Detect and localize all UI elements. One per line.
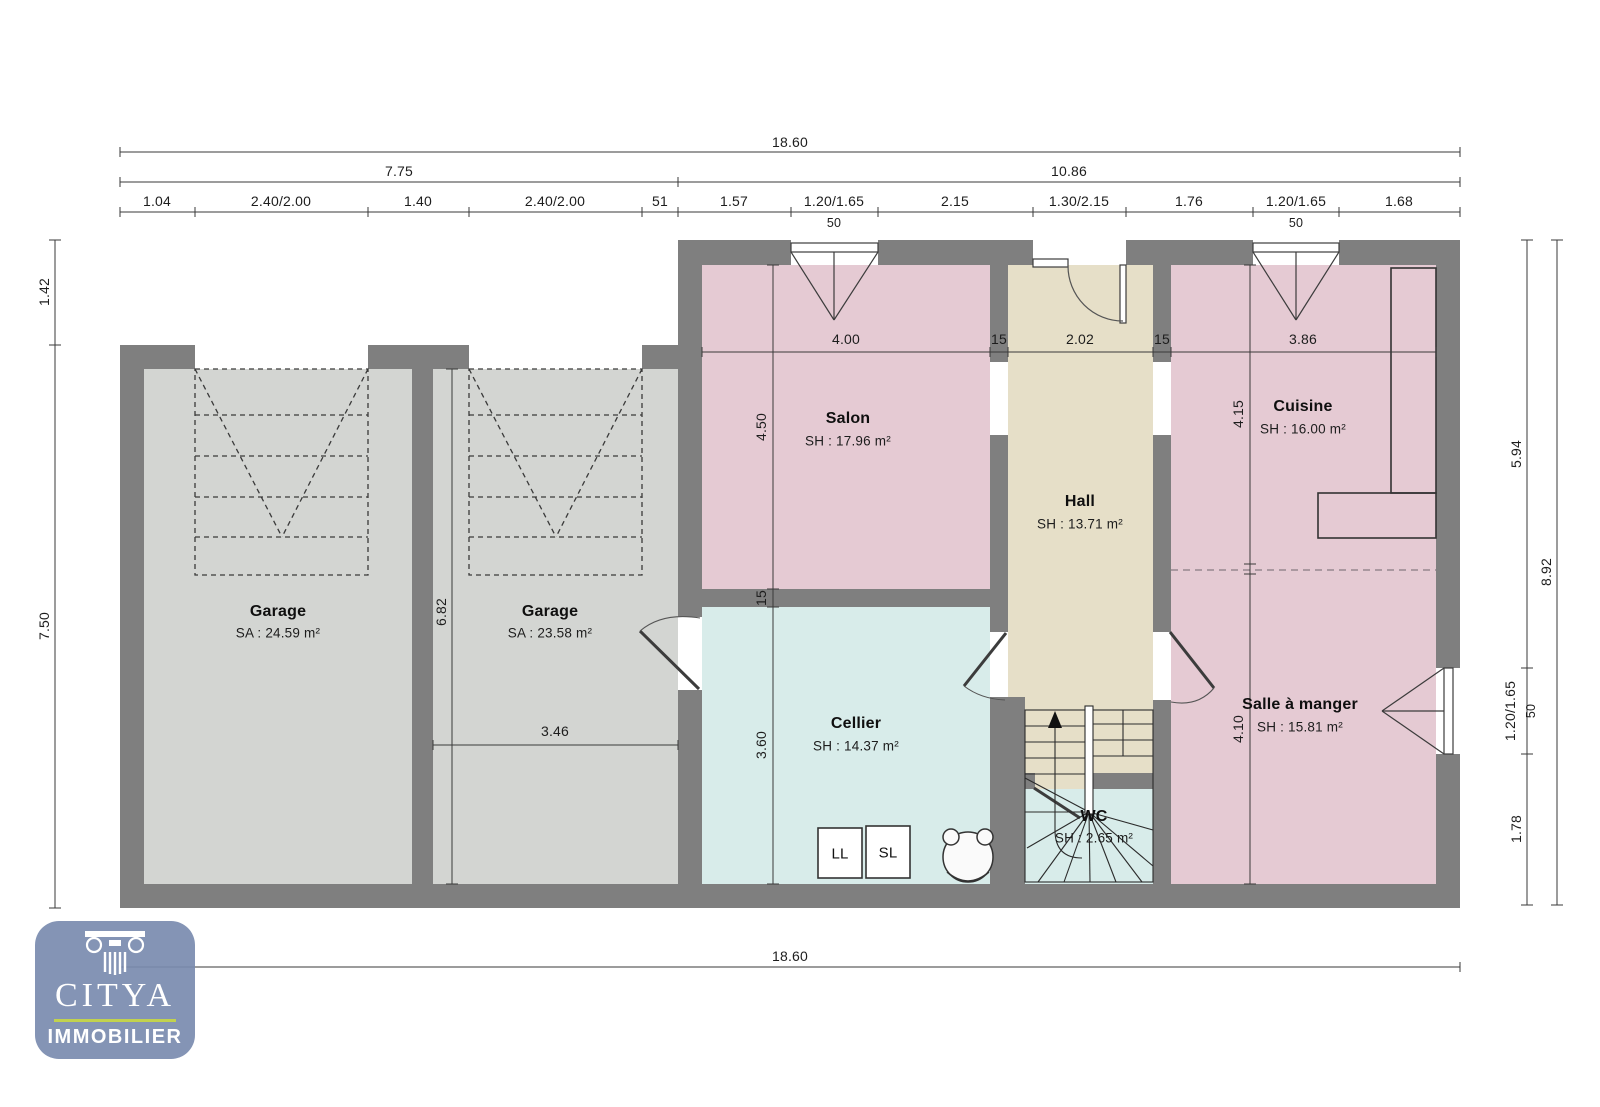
sink-chair-icon xyxy=(943,829,993,882)
dim-row3-8: 1.30/2.15 xyxy=(1049,193,1109,209)
room-label-hall: Hall xyxy=(1065,493,1095,511)
dim-row3-3: 2.40/2.00 xyxy=(525,193,585,209)
room-label-cellier: Cellier xyxy=(831,715,881,733)
room-area-cuisine: SH : 16.00 m² xyxy=(1260,422,1346,437)
logo-tagline-text: IMMOBILIER xyxy=(48,1027,183,1047)
dim-row3-1: 2.40/2.00 xyxy=(251,193,311,209)
dim-right-outer: 8.92 xyxy=(1538,558,1554,586)
dim-left-0: 1.42 xyxy=(36,278,52,306)
dim-row3-11: 1.68 xyxy=(1385,193,1413,209)
room-label-salon: Salon xyxy=(826,410,871,428)
room-area-garage2: SA : 23.58 m² xyxy=(508,626,592,641)
room-label-wc: WC xyxy=(1080,808,1107,826)
room-area-hall: SH : 13.71 m² xyxy=(1037,517,1123,532)
room-area-wc: SH : 2.65 m² xyxy=(1055,831,1133,846)
dim-right-2: 50 xyxy=(1524,704,1538,718)
dim-left-1: 7.50 xyxy=(36,612,52,640)
dim-wall-15: 15 xyxy=(753,590,769,606)
dim-garage2-width: 3.46 xyxy=(541,723,569,739)
dim-row3-10: 1.20/1.65 xyxy=(1266,193,1326,209)
logo-divider xyxy=(54,1019,176,1022)
dim-row3-0: 1.04 xyxy=(143,193,171,209)
logo-badge: CITYA IMMOBILIER xyxy=(35,921,195,1059)
dim-salon-depth: 4.50 xyxy=(753,413,769,441)
dim-right-3: 1.78 xyxy=(1508,815,1524,843)
room-label-garage1: Garage xyxy=(250,603,306,621)
cuisine-dining-floor xyxy=(1171,265,1436,884)
dim-cellier-depth: 3.60 xyxy=(753,731,769,759)
dim-row3-6: 1.20/1.65 xyxy=(804,193,864,209)
room-label-salle: Salle à manger xyxy=(1242,696,1358,714)
room-label-garage2: Garage xyxy=(522,603,578,621)
dim-top-total: 18.60 xyxy=(772,134,808,150)
room-area-cellier: SH : 14.37 m² xyxy=(813,739,899,754)
room-area-garage1: SA : 24.59 m² xyxy=(236,626,320,641)
dim-right-0: 5.94 xyxy=(1508,440,1524,468)
washer-label: LL xyxy=(831,846,848,863)
dim-row3-2: 1.40 xyxy=(404,193,432,209)
dim-row3-9: 1.76 xyxy=(1175,193,1203,209)
column-capital-icon xyxy=(77,930,153,976)
dim-salle-depth: 4.10 xyxy=(1230,715,1246,743)
wc-wall-stub-right xyxy=(1085,773,1171,789)
dim-cuisine-depth: 4.15 xyxy=(1230,400,1246,428)
floor-plan-drawing xyxy=(0,0,1600,1107)
dim-row3-5: 1.57 xyxy=(720,193,748,209)
dim-top-left: 7.75 xyxy=(385,163,413,179)
dim-int-0: 4.00 xyxy=(832,331,860,347)
floor-plan: 18.60 7.75 10.86 1.04 2.40/2.00 1.40 2.4… xyxy=(0,0,1600,1107)
logo-brand-text: CITYA xyxy=(55,979,175,1013)
dim-row3-4: 51 xyxy=(652,193,668,209)
dim-right-1: 1.20/1.65 xyxy=(1502,681,1518,741)
dim-row3-7: 2.15 xyxy=(941,193,969,209)
dim-bottom-total: 18.60 xyxy=(772,948,808,964)
dim-int-4: 3.86 xyxy=(1289,331,1317,347)
dim-int-1: 15 xyxy=(991,331,1007,347)
dim-sill-2: 50 xyxy=(1289,216,1303,230)
room-area-salon: SH : 17.96 m² xyxy=(805,434,891,449)
dim-int-3: 15 xyxy=(1154,331,1170,347)
dim-garage2-height: 6.82 xyxy=(433,598,449,626)
dim-top-right: 10.86 xyxy=(1051,163,1087,179)
dim-int-2: 2.02 xyxy=(1066,331,1094,347)
room-area-salle: SH : 15.81 m² xyxy=(1257,720,1343,735)
dryer-label: SL xyxy=(879,845,898,862)
room-label-cuisine: Cuisine xyxy=(1273,398,1332,416)
dim-sill-1: 50 xyxy=(827,216,841,230)
